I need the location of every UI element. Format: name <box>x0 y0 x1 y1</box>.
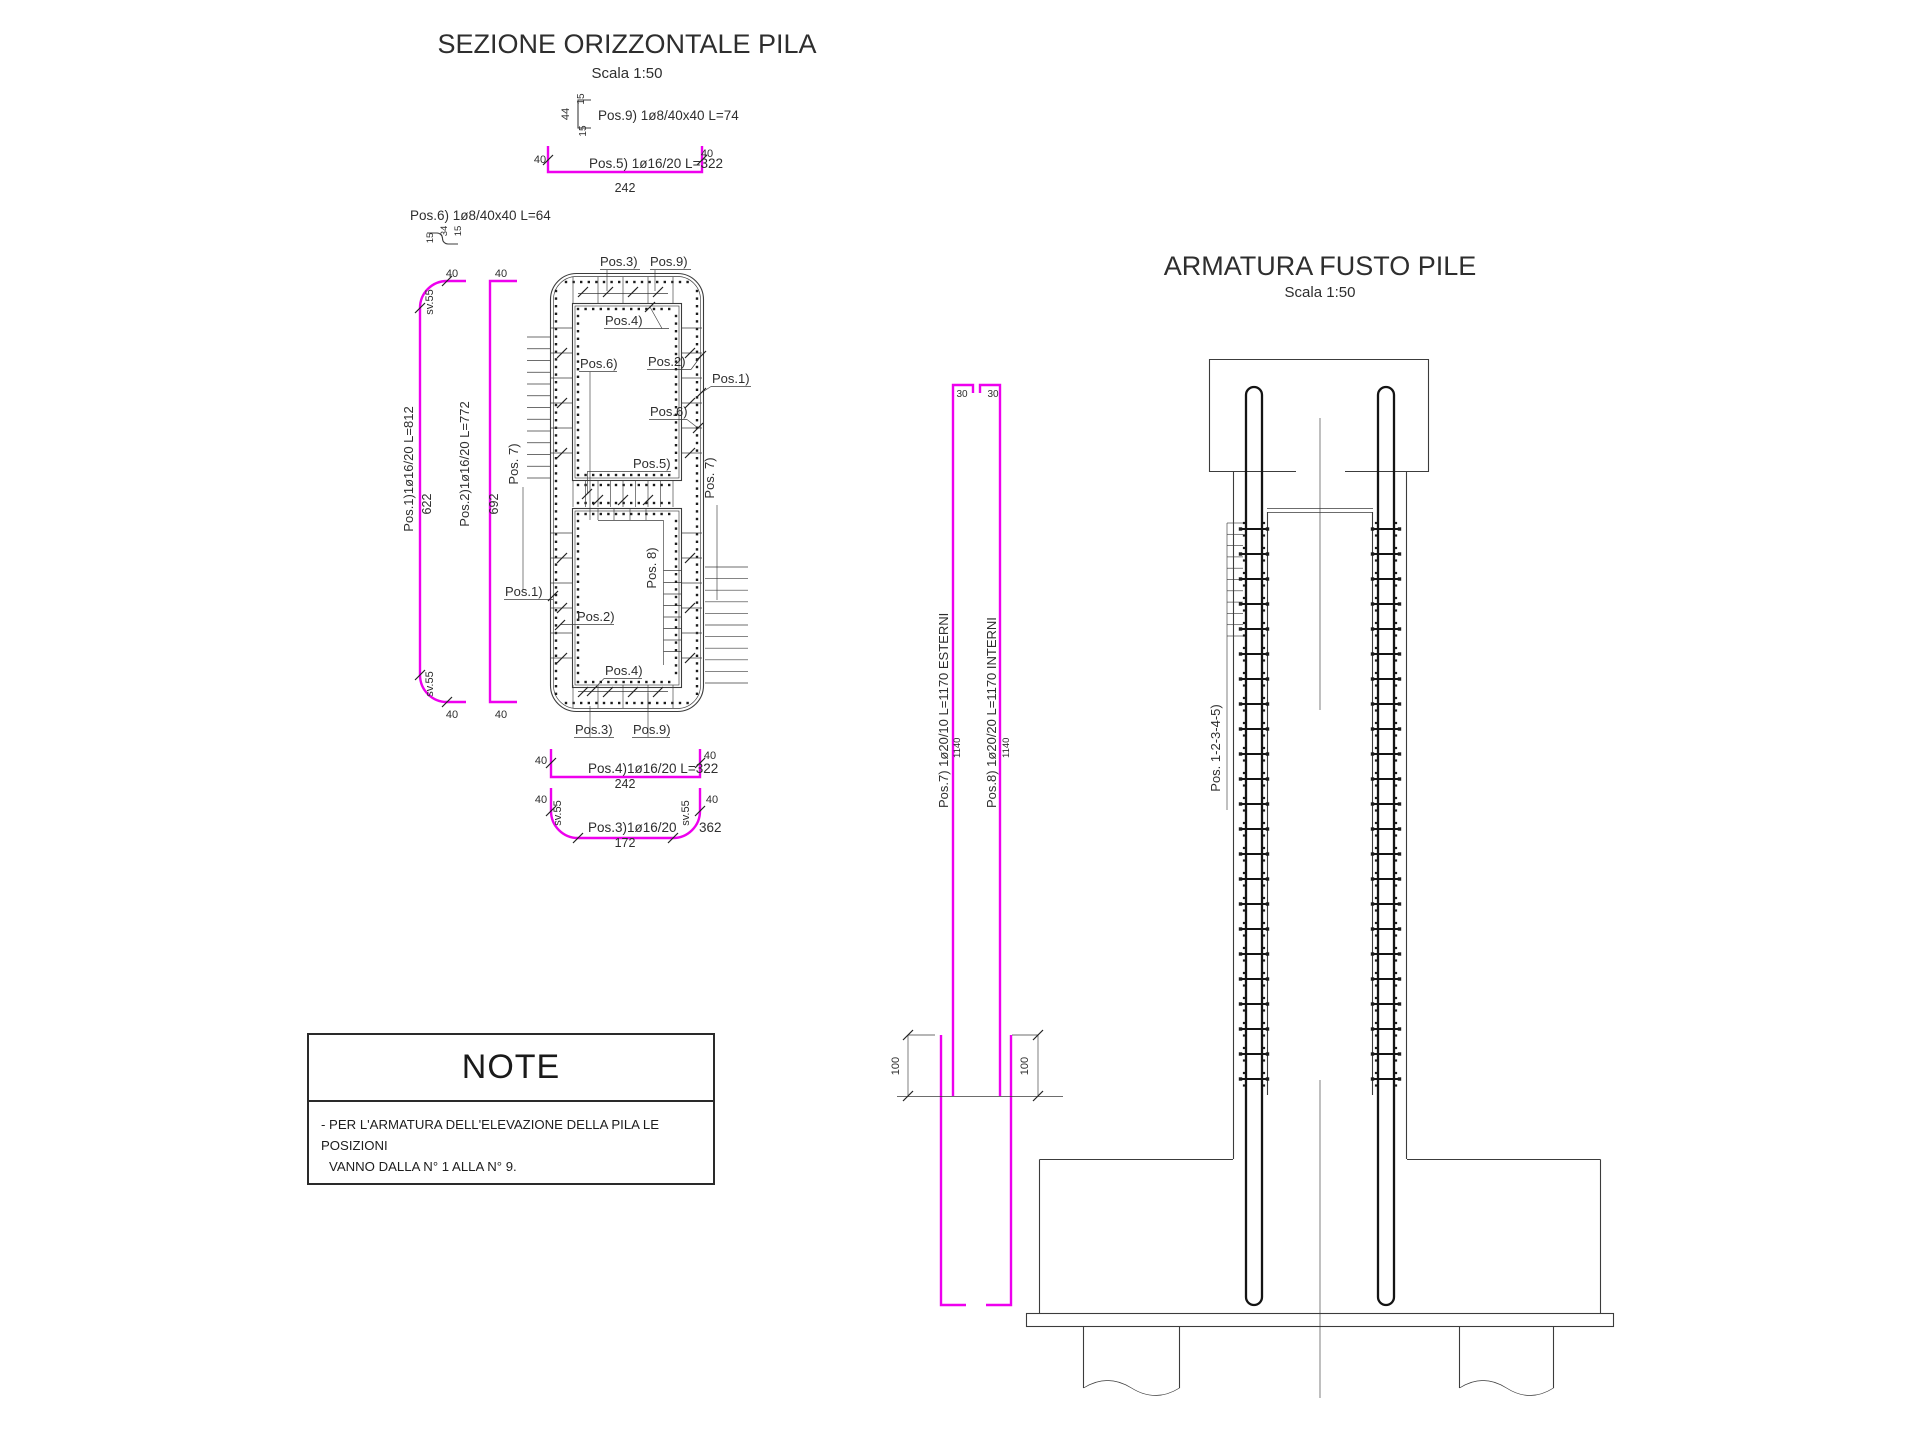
pos2-schedule: Pos.2)1ø16/20 L=772 <box>457 401 472 526</box>
note-box: NOTE - PER L'ARMATURA DELL'ELEVAZIONE DE… <box>307 1033 715 1185</box>
label-pos1-left: Pos.1) <box>505 584 543 599</box>
label-pos6-upper: Pos.6) <box>580 356 618 371</box>
dim-100-left: 100 <box>890 1057 902 1075</box>
dim-15-top: 15 <box>576 93 587 105</box>
pos9-schedule: Pos.9) 1ø8/40x40 L=74 <box>598 108 739 123</box>
bar-schedule-middle <box>897 385 1063 1305</box>
dim-sv55-pos1-top: sv.55 <box>424 289 436 314</box>
section-scale: Scala 1:50 <box>592 65 663 82</box>
dim-34-pos6: 34 <box>439 226 450 237</box>
dim-40-pos4b-right: 40 <box>704 750 716 762</box>
dim-622-pos1: 622 <box>420 494 434 515</box>
label-pos2-upper: Pos.2) <box>648 354 686 369</box>
label-pos6-lower: Pos.6) <box>650 404 688 419</box>
pos4-schedule: Pos.4)1ø16/20 L=322 <box>588 761 718 776</box>
engineering-drawing: SEZIONE ORIZZONTALE PILAScala 1:50ARMATU… <box>0 0 1920 1440</box>
label-pos3-bot: Pos.3) <box>575 722 613 737</box>
label-pos4-bot: Pos.4) <box>605 663 643 678</box>
label-pos12345: Pos. 1-2-3-4-5) <box>1208 704 1223 791</box>
dim-40-pos3b-right: 40 <box>706 794 718 806</box>
dim-40-pos5-left: 40 <box>534 154 546 166</box>
dim-40-pos2-bot: 40 <box>495 709 507 721</box>
dim-40-pos3b-left: 40 <box>535 794 547 806</box>
note-line-1: - PER L'ARMATURA DELL'ELEVAZIONE DELLA P… <box>321 1114 703 1156</box>
note-title: NOTE <box>309 1035 713 1102</box>
pos3-schedule: Pos.3)1ø16/20 <box>588 820 677 835</box>
pos7-schedule: Pos.7) 1ø20/10 L=1170 ESTERNI <box>936 613 951 808</box>
dim-sv55-pos3-left: sv.55 <box>552 800 564 825</box>
label-pos5-mid: Pos.5) <box>633 456 671 471</box>
label-pos2-lower: Pos.2) <box>577 609 615 624</box>
pos8-schedule: Pos.8) 1ø20/20 L=1170 INTERNI <box>984 617 999 808</box>
dim-44: 44 <box>560 108 572 120</box>
label-pos7-right: Pos. 7) <box>702 457 717 498</box>
drawing-labels: SEZIONE ORIZZONTALE PILAScala 1:50ARMATU… <box>401 29 1476 1075</box>
dim-40-pos4b-left: 40 <box>535 755 547 767</box>
label-pos8-inner: Pos. 8) <box>644 547 659 588</box>
dim-40-pos2-top: 40 <box>495 268 507 280</box>
label-pos9-bot: Pos.9) <box>633 722 671 737</box>
dim-15b-pos6: 15 <box>453 226 464 237</box>
label-pos9-top: Pos.9) <box>650 254 688 269</box>
note-line-2: VANNO DALLA N° 1 ALLA N° 9. <box>321 1156 703 1177</box>
rebar-patterns <box>415 155 1401 1101</box>
label-pos1-right: Pos.1) <box>712 371 750 386</box>
label-pos7-left: Pos. 7) <box>506 443 521 484</box>
dim-30-pos7: 30 <box>956 389 968 400</box>
pier-elevation <box>1027 360 1614 1399</box>
dim-172-pos3: 172 <box>615 836 636 850</box>
dim-sv55-pos3-right: sv.55 <box>680 800 692 825</box>
dim-15-bot: 15 <box>578 125 589 137</box>
pier-section-outline <box>551 274 704 712</box>
dim-1140-pos7: 1140 <box>952 738 963 758</box>
section-title: SEZIONE ORIZZONTALE PILA <box>437 29 816 59</box>
dim-242-pos4: 242 <box>615 777 636 791</box>
dim-sv55-pos1-bot: sv.55 <box>424 671 436 696</box>
dim-40-pos1-top: 40 <box>446 268 458 280</box>
dim-1140-pos8: 1140 <box>1001 738 1012 758</box>
dim-100-right: 100 <box>1019 1057 1031 1075</box>
label-pos3-top: Pos.3) <box>600 254 638 269</box>
dim-692-pos2: 692 <box>487 494 501 515</box>
elevation-title: ARMATURA FUSTO PILE <box>1164 251 1477 281</box>
dim-40-pos1-bot: 40 <box>446 709 458 721</box>
label-pos4-top: Pos.4) <box>605 313 643 328</box>
drawing-sheet: SEZIONE ORIZZONTALE PILAScala 1:50ARMATU… <box>0 0 1920 1440</box>
pos1-schedule: Pos.1)1ø16/20 L=812 <box>401 406 416 531</box>
note-body: - PER L'ARMATURA DELL'ELEVAZIONE DELLA P… <box>309 1102 713 1177</box>
dim-40-pos5-right: 40 <box>701 148 713 160</box>
elevation-scale: Scala 1:50 <box>1285 284 1356 301</box>
dim-242-pos5: 242 <box>615 181 636 195</box>
pos3-length: 362 <box>699 820 722 835</box>
pos6-schedule: Pos.6) 1ø8/40x40 L=64 <box>410 208 551 223</box>
dim-30-pos8: 30 <box>987 389 999 400</box>
dim-15a-pos6: 15 <box>425 233 436 244</box>
